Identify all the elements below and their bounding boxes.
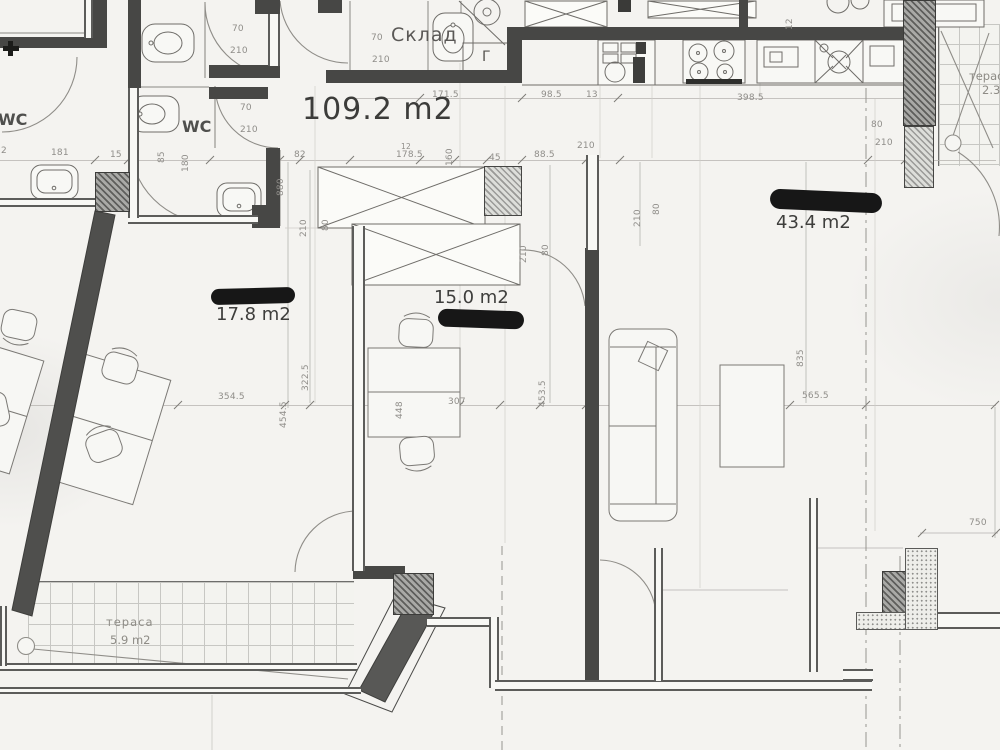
dim-label: 85 xyxy=(157,151,167,163)
column-hatched xyxy=(484,166,522,216)
terrace-area: 5.9 m2 xyxy=(110,633,150,647)
terrace2-area: 2.3 xyxy=(982,83,1000,97)
dim-label: 70 xyxy=(371,33,383,43)
wall-segment xyxy=(739,0,748,39)
dim-label: 307 xyxy=(448,397,466,407)
survey-cross-icon xyxy=(8,41,13,56)
dim-label: 210 xyxy=(577,141,595,151)
dim-label: 565.5 xyxy=(802,391,829,401)
wall-segment xyxy=(585,248,599,683)
dim-label: 210 xyxy=(633,209,643,227)
shower-icon xyxy=(474,0,500,25)
counter-edge xyxy=(0,198,96,207)
kitchen-counter xyxy=(522,40,905,85)
dim-label: 453.5 xyxy=(538,380,548,407)
dim-label: 210 xyxy=(372,55,390,65)
wall-segment xyxy=(209,87,268,99)
dim-label: 835 xyxy=(796,349,806,367)
wall-segment xyxy=(255,0,280,14)
wall-segment xyxy=(209,65,280,78)
wall-segment xyxy=(268,14,280,66)
dim-label: 80 xyxy=(652,203,662,215)
column-hatched xyxy=(95,172,130,212)
wall-segment xyxy=(809,498,818,672)
dim-label: 88.5 xyxy=(534,150,555,160)
coffee-table xyxy=(720,365,784,467)
wall-segment xyxy=(843,669,873,681)
wall-segment xyxy=(0,663,357,671)
floorplan-sheet: 109.2 m2 17.8 m2 15.0 m2 кабинет 43.4 m2… xyxy=(0,0,1000,750)
wall-segment xyxy=(0,687,361,694)
column-hatched xyxy=(393,573,434,615)
dim-label: 454.5 xyxy=(279,401,289,428)
dim-label: 322.5 xyxy=(301,364,311,391)
room-name-wc-left: WC xyxy=(0,110,27,129)
dim-label: 880 xyxy=(276,178,286,196)
room-label-living: 43.4 m2 xyxy=(776,212,851,233)
wall-segment xyxy=(93,0,107,48)
area-label-total: 109.2 m2 xyxy=(302,92,454,127)
dim-label: 98.5 xyxy=(541,90,562,100)
dim-label: 171.5 xyxy=(432,90,459,100)
wall-segment xyxy=(0,606,7,666)
dim-label: 180 xyxy=(181,154,191,172)
redaction-mark xyxy=(211,287,295,305)
dim-label: 160 xyxy=(445,148,455,166)
dim-label: 70 xyxy=(232,24,244,34)
wall-segment xyxy=(84,0,93,38)
wall-segment xyxy=(326,70,522,83)
wall-segment xyxy=(654,548,663,681)
sofa xyxy=(609,329,677,521)
wall-segment xyxy=(266,148,280,206)
wall-segment xyxy=(938,612,1000,629)
room-label-office-left: 17.8 m2 xyxy=(216,304,291,325)
dim-label: 398.5 xyxy=(737,93,764,103)
dim-label: 15 xyxy=(110,150,122,160)
wall-segment xyxy=(495,680,872,691)
wall-segment xyxy=(128,0,141,88)
wall-hatched xyxy=(903,0,936,126)
dim-label: 210 xyxy=(230,46,248,56)
wall-segment xyxy=(586,155,599,250)
dim-label: 12 xyxy=(785,18,795,30)
wall-segment xyxy=(518,27,931,40)
wall-segment xyxy=(318,0,342,13)
wall-segment xyxy=(352,226,365,571)
room-name-storage: Склад xyxy=(391,24,458,46)
dim-label: 181 xyxy=(51,148,69,158)
wall-segment xyxy=(128,215,258,224)
wall-hatched xyxy=(904,126,934,188)
dim-label: 80 xyxy=(541,244,551,256)
dim-label: 210 xyxy=(240,125,258,135)
room-label-cabinet: 15.0 m2 xyxy=(434,287,509,308)
dim-label: 2 xyxy=(1,146,7,156)
dim-label: 210 xyxy=(299,219,309,237)
dim-label: 210 xyxy=(875,138,893,148)
dim-label: 178.5 xyxy=(396,150,423,160)
appliance-letter: Г xyxy=(482,49,491,65)
terrace-name: тераса xyxy=(106,615,154,629)
dim-label: 45 xyxy=(489,153,501,163)
dim-label: 70 xyxy=(240,103,252,113)
dim-label: 80 xyxy=(321,219,331,231)
dim-label: 354.5 xyxy=(218,392,245,402)
door-arcs xyxy=(2,1,999,618)
wall-segment xyxy=(427,617,495,627)
wall-insulated xyxy=(905,548,938,630)
dim-label: 448 xyxy=(395,401,405,419)
dim-label: 82 xyxy=(294,150,306,160)
terrace2-name: тераса xyxy=(969,69,1000,83)
room-name-wc-mid: WC xyxy=(182,117,211,136)
dim-label: 750 xyxy=(969,518,987,528)
wall-segment xyxy=(489,617,499,688)
dim-label: 210 xyxy=(519,245,529,263)
dim-label: 13 xyxy=(586,90,598,100)
dim-label: 80 xyxy=(871,120,883,130)
redaction-mark xyxy=(438,309,525,330)
